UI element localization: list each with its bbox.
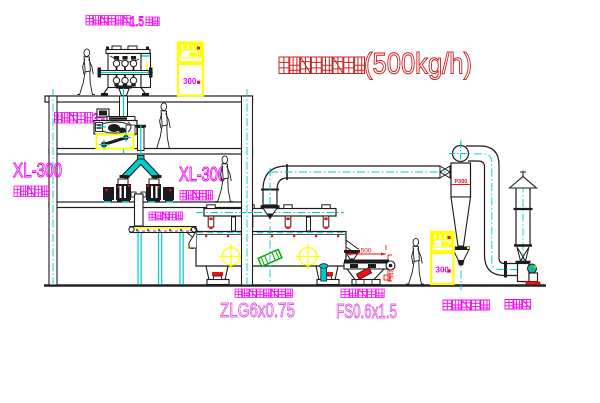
svg-text:ZLG6x0.75: ZLG6x0.75 (220, 300, 295, 322)
svg-text:XL-300: XL-300 (13, 159, 62, 182)
svg-text:XL-300: XL-300 (179, 164, 226, 186)
svg-text:1500: 1500 (357, 248, 372, 255)
svg-text:1.5: 1.5 (130, 14, 144, 29)
svg-text:FS0.6x1.5: FS0.6x1.5 (336, 301, 397, 323)
svg-text:P300: P300 (455, 179, 468, 185)
svg-text:300: 300 (436, 266, 450, 275)
svg-text:300: 300 (183, 77, 197, 86)
svg-text:(500kg/h): (500kg/h) (364, 48, 472, 81)
